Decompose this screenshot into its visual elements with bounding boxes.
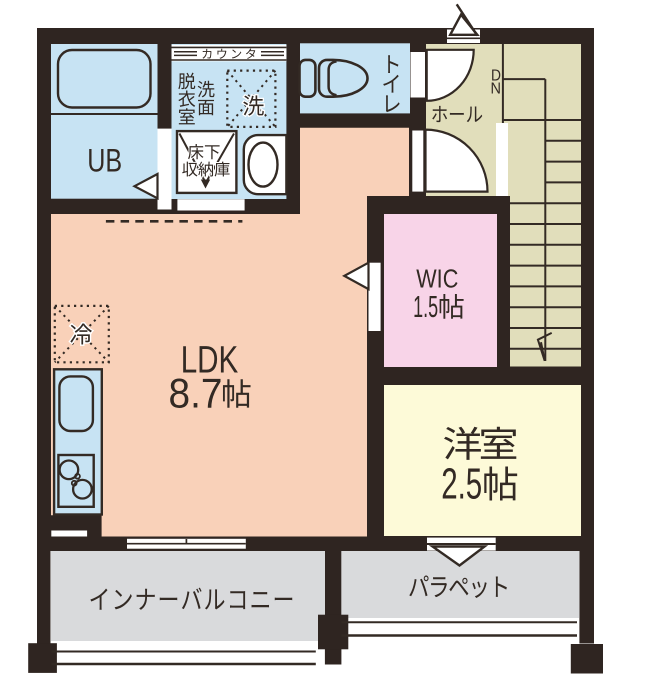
- svg-text:UB: UB: [87, 142, 122, 178]
- svg-text:N: N: [490, 81, 501, 98]
- svg-text:1.5: 1.5: [413, 290, 438, 324]
- svg-text:8.7: 8.7: [169, 370, 223, 417]
- svg-text:2.5: 2.5: [441, 460, 482, 509]
